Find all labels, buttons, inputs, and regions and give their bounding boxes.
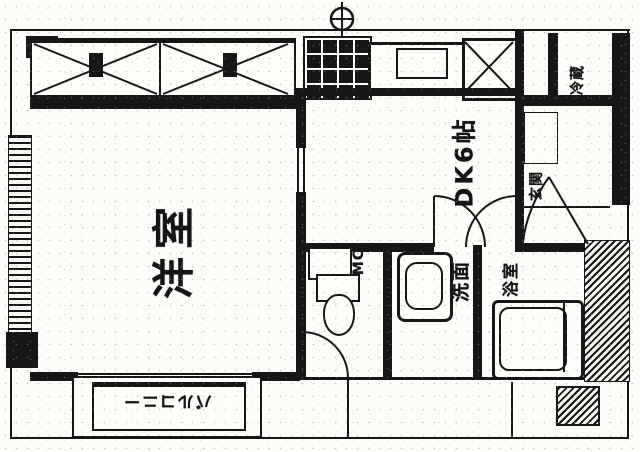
balcony-label: バルコニー <box>122 391 212 415</box>
entrance-label: 玄関 <box>526 171 546 201</box>
floor-plan: 洋室 DK6帖 MC 洗面 浴室 玄関 冷蔵 バルコニー <box>0 0 640 452</box>
refrigerator-label: 冷蔵 <box>567 65 587 95</box>
wc-door-swing <box>302 332 348 378</box>
line-symbols <box>0 0 640 452</box>
bathroom-label: 浴室 <box>497 261 521 297</box>
gas-meter-icon <box>331 2 353 38</box>
living-room-label: 洋室 <box>141 199 202 299</box>
meter-closet-label: MC <box>351 249 367 275</box>
dining-kitchen-label: DK6帖 <box>445 116 480 207</box>
washroom-label: 洗面 <box>446 260 473 302</box>
x-brace-lines <box>34 42 513 94</box>
